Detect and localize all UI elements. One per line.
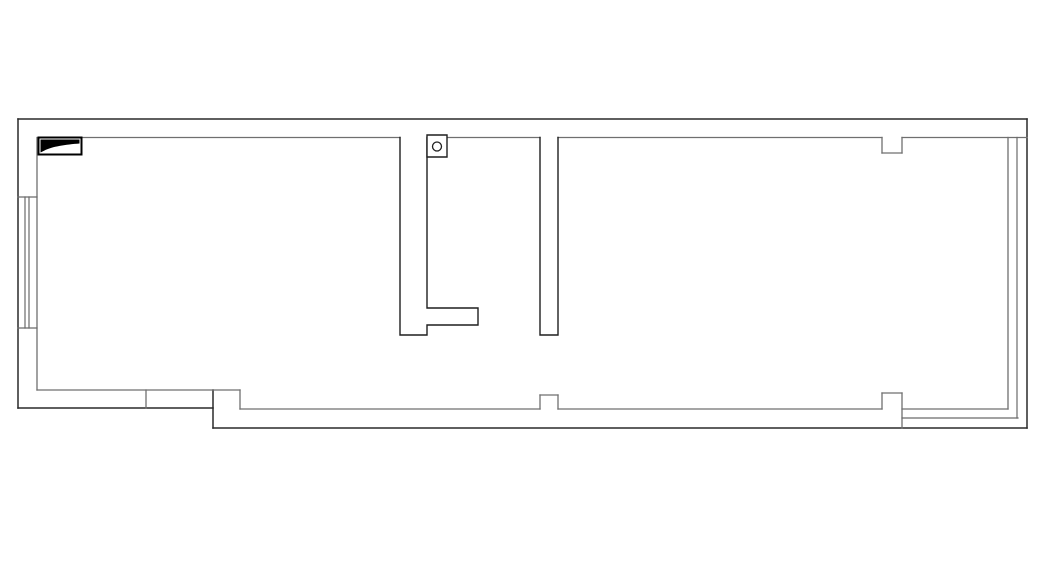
floor-plan [0, 0, 1052, 582]
floor-plan-svg [0, 0, 1052, 582]
flue-box [427, 135, 447, 157]
partition-wall-a [400, 138, 478, 336]
partition-wall-b [540, 138, 558, 336]
